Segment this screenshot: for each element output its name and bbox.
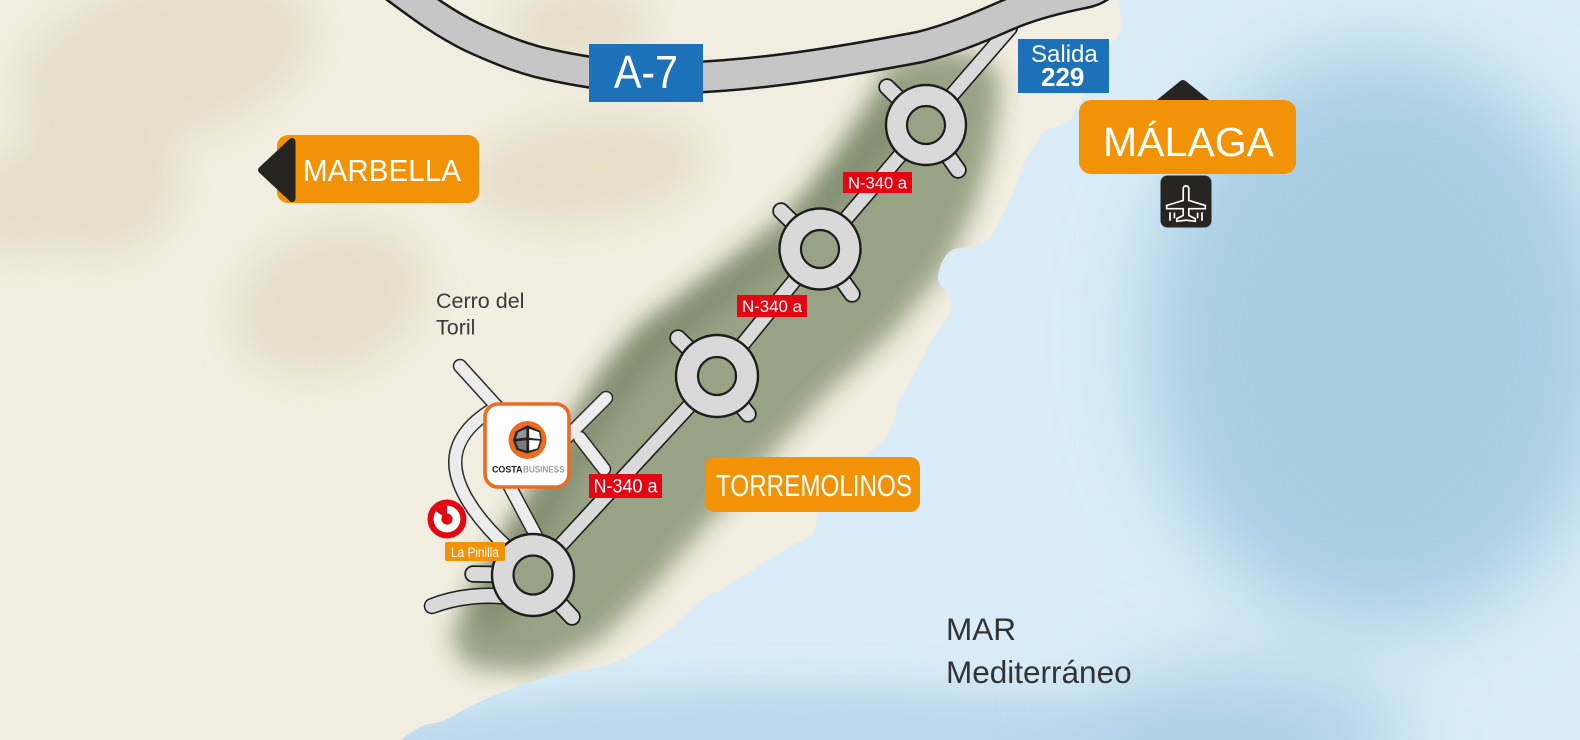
svg-text:N-340 a: N-340 a — [848, 174, 908, 193]
svg-text:N-340 a: N-340 a — [742, 297, 803, 316]
svg-text:BUSINESS: BUSINESS — [523, 465, 565, 475]
svg-text:A-7: A-7 — [614, 46, 678, 98]
svg-text:TORREMOLINOS: TORREMOLINOS — [716, 468, 912, 503]
svg-text:Cerro del: Cerro del — [436, 289, 524, 313]
svg-text:MAR: MAR — [946, 611, 1016, 647]
svg-text:N-340 a: N-340 a — [594, 477, 658, 498]
svg-text:COSTA: COSTA — [492, 465, 523, 475]
svg-text:229: 229 — [1041, 62, 1084, 92]
svg-text:MARBELLA: MARBELLA — [303, 153, 461, 188]
svg-text:La Pinilla: La Pinilla — [451, 545, 499, 560]
svg-text:MÁLAGA: MÁLAGA — [1103, 119, 1275, 165]
svg-text:Toril: Toril — [436, 316, 475, 340]
svg-text:Mediterráneo: Mediterráneo — [946, 654, 1132, 690]
